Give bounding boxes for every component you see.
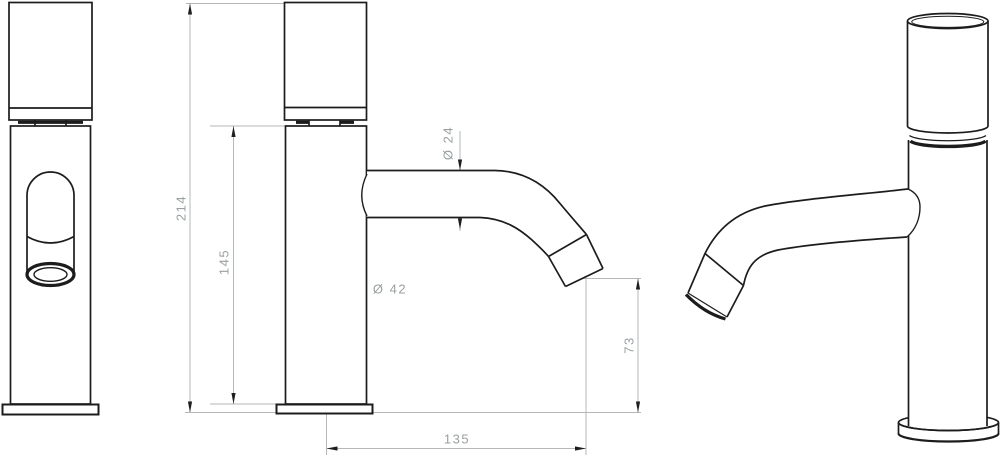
dim-label-overall-height: 214 bbox=[175, 195, 188, 221]
side-base bbox=[277, 405, 373, 414]
arrow-135-right bbox=[575, 446, 586, 450]
persp-base-bottom bbox=[899, 434, 999, 442]
side-spout-fill bbox=[362, 171, 603, 287]
arrow-d24-bottom bbox=[458, 219, 462, 230]
arrow-73-top bbox=[636, 279, 640, 290]
persp-handle-fill bbox=[908, 21, 989, 126]
arrow-145-bottom bbox=[231, 393, 235, 404]
dim-label-spout-diameter: Ø 24 bbox=[442, 126, 455, 160]
side-handle bbox=[285, 3, 367, 121]
persp-body-fill bbox=[909, 140, 988, 426]
front-handle bbox=[9, 3, 92, 121]
arrow-135-left bbox=[327, 446, 338, 450]
side-view bbox=[277, 3, 604, 414]
arrow-145-top bbox=[231, 126, 235, 137]
dim-label-body-diameter: Ø 42 bbox=[373, 283, 407, 296]
side-body bbox=[286, 126, 367, 404]
drawing-canvas: 214 145 Ø 42 Ø 24 73 135 bbox=[0, 0, 1000, 456]
arrow-214-bottom bbox=[188, 402, 192, 413]
dim-label-spout-reach: 135 bbox=[444, 433, 470, 446]
perspective-view bbox=[686, 14, 999, 442]
arrow-d24-top bbox=[458, 160, 462, 171]
persp-neck-ring-top bbox=[910, 136, 987, 141]
dim-label-body-height: 145 bbox=[218, 249, 231, 275]
dim-label-outlet-height: 73 bbox=[623, 336, 636, 353]
arrow-73-bottom bbox=[636, 402, 640, 413]
arrow-214-top bbox=[188, 4, 192, 15]
faucet-three-view-drawing bbox=[0, 0, 1000, 456]
front-view bbox=[3, 3, 99, 415]
persp-handle-bottom bbox=[908, 126, 989, 133]
front-base bbox=[3, 405, 99, 415]
persp-spout-fill bbox=[688, 189, 920, 317]
